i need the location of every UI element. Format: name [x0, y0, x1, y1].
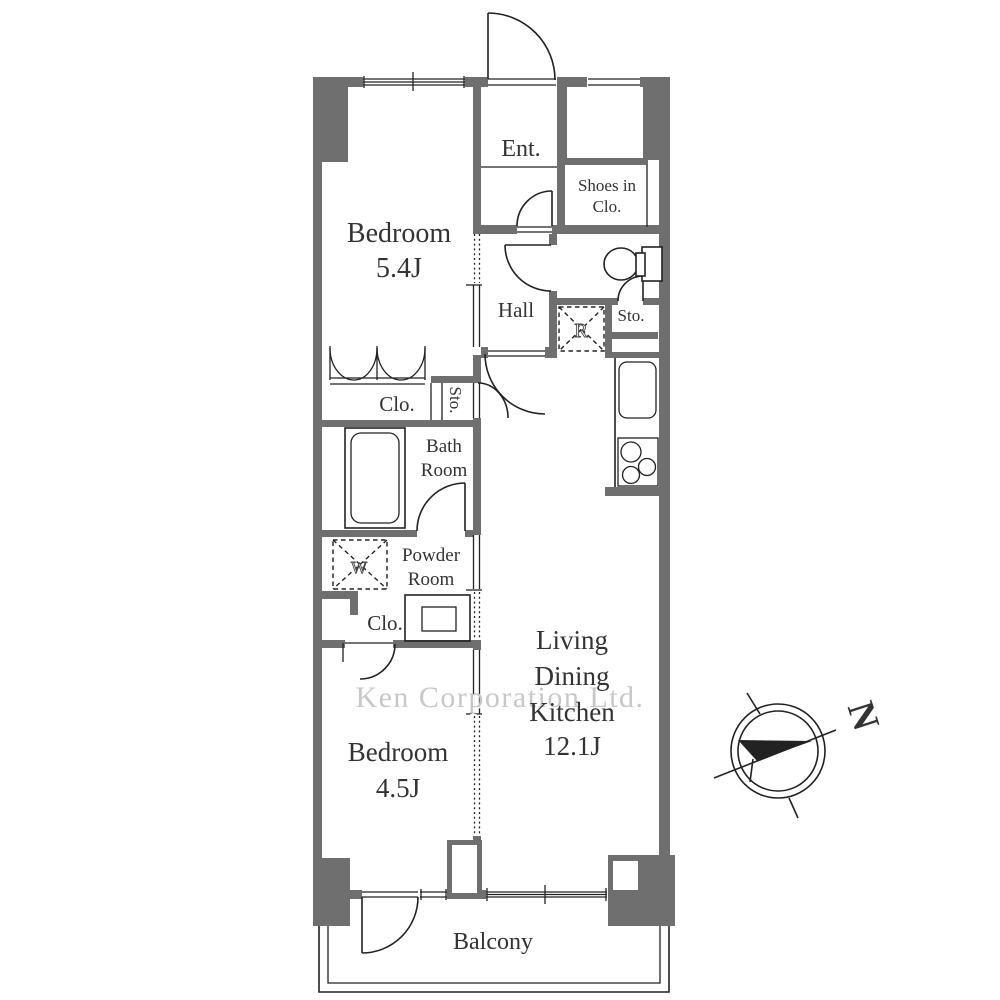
wall-segment: [557, 165, 565, 227]
wall-segment: [557, 86, 567, 160]
shoes-closet-label-2: Clo.: [593, 197, 622, 216]
powder-room-label-2: Room: [408, 569, 455, 590]
wall-segment: [313, 77, 363, 87]
bedroom-upper-size: 5.4J: [376, 253, 422, 284]
ldk-label-2: Dining: [534, 661, 609, 691]
fixed-window: [420, 889, 447, 900]
powder-room-label-1: Powder: [402, 545, 461, 566]
wall-segment: [643, 77, 670, 160]
closet-upper-label: Clo.: [379, 392, 415, 416]
closet-lower-door: [343, 643, 395, 679]
wc-hall-door: [505, 245, 551, 291]
wall-segment: [643, 298, 668, 305]
wall-segment: [313, 77, 348, 162]
wall-segment: [557, 77, 587, 87]
sliding-door-powder-room: [466, 535, 482, 640]
wall-segment: [473, 86, 481, 234]
refrigerator-label: R: [574, 320, 588, 342]
wall-segment: [473, 418, 481, 535]
window-ldk-balcony: [486, 885, 607, 904]
wall-segment: [605, 352, 670, 358]
washbasin-icon: [405, 595, 470, 641]
balcony-label: Balcony: [453, 929, 533, 955]
wall-segment: [549, 234, 557, 245]
window-bedroom-upper: [363, 72, 465, 91]
wall-segment: [313, 530, 417, 537]
closet-upper-folding-doors: [330, 346, 425, 384]
bedroom-upper-name: Bedroom: [347, 218, 451, 249]
bathroom-label-1: Bath: [426, 436, 462, 457]
wall-segment: [465, 530, 473, 537]
bedroom-lower-size: 4.5J: [376, 773, 420, 803]
closet-lower-label: Clo.: [367, 611, 403, 635]
wall-segment: [612, 332, 658, 339]
wall-segment: [473, 355, 481, 383]
room-labels: Bedroom 5.4J Ent. Shoes in Clo. Hall R S…: [347, 136, 645, 955]
wall-segment: [313, 160, 322, 863]
wall-segment: [350, 599, 358, 615]
kitchen-counter: [615, 358, 658, 487]
balcony-door: [362, 897, 418, 953]
wall-segment: [313, 591, 358, 599]
sink-icon: [619, 362, 656, 418]
compass-tick: [789, 798, 798, 818]
bedroom-lower-name: Bedroom: [348, 737, 449, 767]
floor-plan: N Ken Corporation Ltd. Ken Corporation L…: [0, 0, 1000, 1000]
wall-segment: [313, 858, 350, 926]
wall-segment: [605, 487, 669, 496]
meter-box-slot: [588, 79, 640, 85]
ent-hall-threshold: [517, 227, 552, 232]
wall-segment: [482, 890, 486, 899]
wall-segment: [313, 640, 345, 648]
doors: [343, 13, 643, 953]
wall-segment: [557, 298, 618, 305]
compass: N: [714, 693, 887, 818]
hall-label: Hall: [498, 298, 534, 322]
ldk-label-1: Living: [536, 625, 608, 655]
entrance-label: Ent.: [501, 136, 540, 162]
wall-segment: [313, 420, 473, 427]
compass-north-label: N: [839, 696, 887, 735]
toilet-icon: [604, 247, 662, 281]
ldk-door: [485, 354, 545, 414]
washer-label: W: [351, 558, 368, 577]
ent-hall-door: [517, 191, 552, 226]
bathroom-label-2: Room: [421, 460, 468, 481]
bathroom-door: [417, 483, 465, 531]
wall-segment: [481, 225, 517, 234]
wall-segment: [473, 640, 481, 650]
ldk-door-threshold: [488, 351, 545, 356]
compass-arrow-icon: [738, 740, 812, 761]
pipe-space-slot: [452, 845, 477, 893]
sliding-door-bedroom-lower: [466, 650, 482, 836]
wall-segment: [549, 291, 557, 355]
ldk-label-3: Kitchen: [529, 697, 615, 727]
entrance-door: [488, 13, 555, 80]
sliding-door-bedroom-upper: [466, 234, 482, 347]
floor-plan-canvas: N Ken Corporation Ltd. Ken Corporation L…: [0, 0, 1000, 1000]
wall-segment: [552, 225, 668, 234]
storage-mid-door: [474, 383, 509, 418]
wall-segment: [557, 158, 648, 165]
wall-segment: [431, 376, 475, 383]
bathtub-icon: [345, 428, 405, 528]
wall-segment: [545, 347, 557, 358]
entrance-threshold: [488, 79, 556, 85]
shoes-closet-label-1: Shoes in: [578, 176, 637, 195]
wall-segment: [348, 890, 362, 899]
wall-segment: [605, 305, 612, 352]
ldk-size: 12.1J: [543, 731, 601, 761]
storage-wc-label: Sto.: [618, 306, 645, 325]
balcony-door-threshold: [362, 892, 418, 897]
pipe-space-slot: [613, 861, 638, 890]
wall-segment: [465, 77, 488, 87]
storage-mid-label: Sto.: [446, 387, 465, 414]
